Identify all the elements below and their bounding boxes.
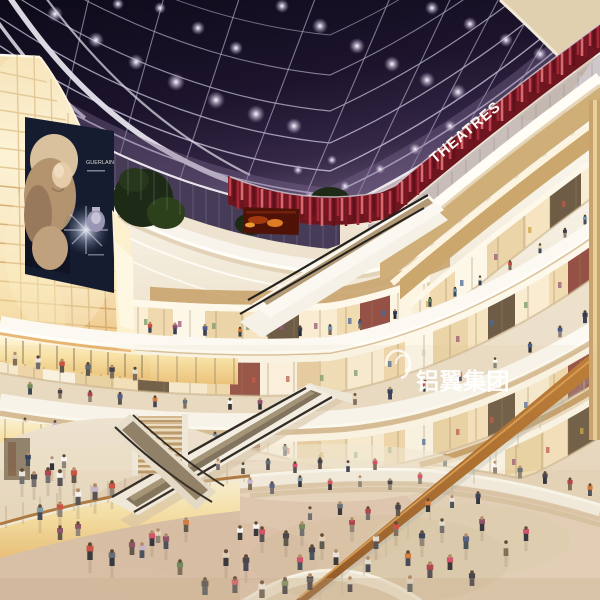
svg-text:铝翼集团: 铝翼集团: [416, 368, 510, 394]
svg-text:GUERLAIN: GUERLAIN: [86, 160, 114, 166]
